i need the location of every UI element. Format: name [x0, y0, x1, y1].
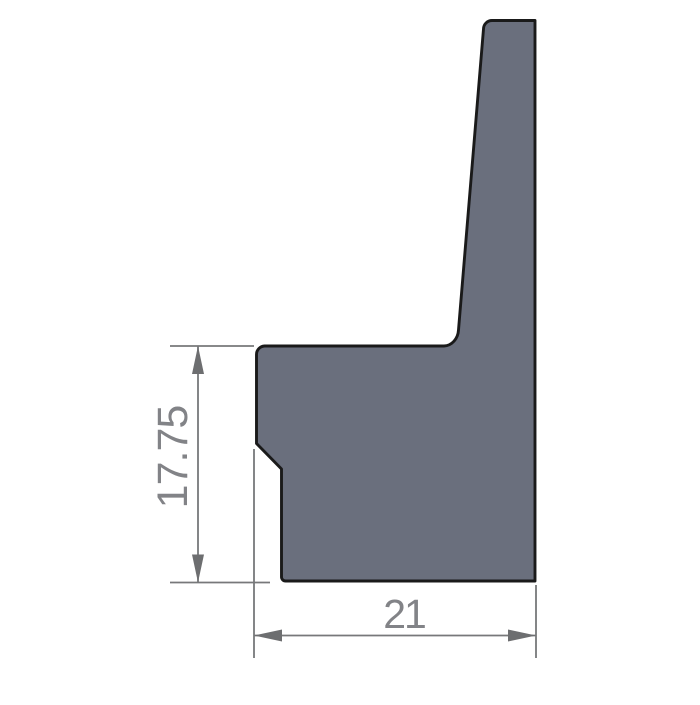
svg-text:17.75: 17.75 — [149, 406, 197, 509]
svg-text:21: 21 — [383, 591, 425, 637]
